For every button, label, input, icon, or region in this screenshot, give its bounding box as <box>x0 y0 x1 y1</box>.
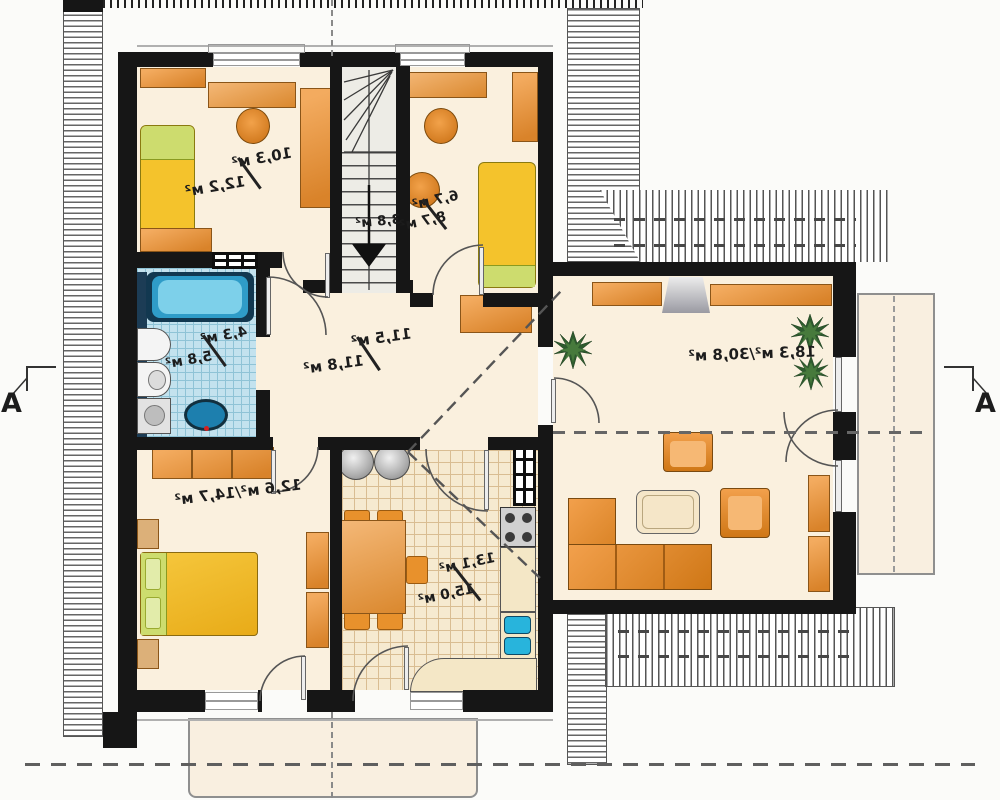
roof-valley-lines <box>408 290 562 578</box>
living-ridge-line <box>553 431 931 434</box>
area-total-value: 12,2 м² <box>183 172 247 202</box>
section-marker-right: A <box>975 386 996 421</box>
door-arcs <box>260 245 838 701</box>
section-marker-left: A <box>1 386 22 421</box>
area-total-value: 11,8 м² <box>302 351 365 379</box>
plant-icon <box>554 331 592 369</box>
section-marker-lines <box>12 367 988 395</box>
ridge-line-vertical-top <box>331 0 333 56</box>
area-value: 18,3 м²/30,8 м² <box>688 342 816 364</box>
ridge-line-vertical-bottom <box>331 712 333 798</box>
area-value: 3,8 м² <box>355 212 402 232</box>
area-total-value: 5,8 м² <box>164 348 214 374</box>
balcony-centerline <box>893 296 895 572</box>
plan-linework <box>0 0 1000 800</box>
section-line-horizontal <box>25 763 975 766</box>
floor-plan: 10,3 м² 12,2 м² 6,7 м² 8,7 м² 3,8 м² 4,3… <box>0 0 1000 800</box>
